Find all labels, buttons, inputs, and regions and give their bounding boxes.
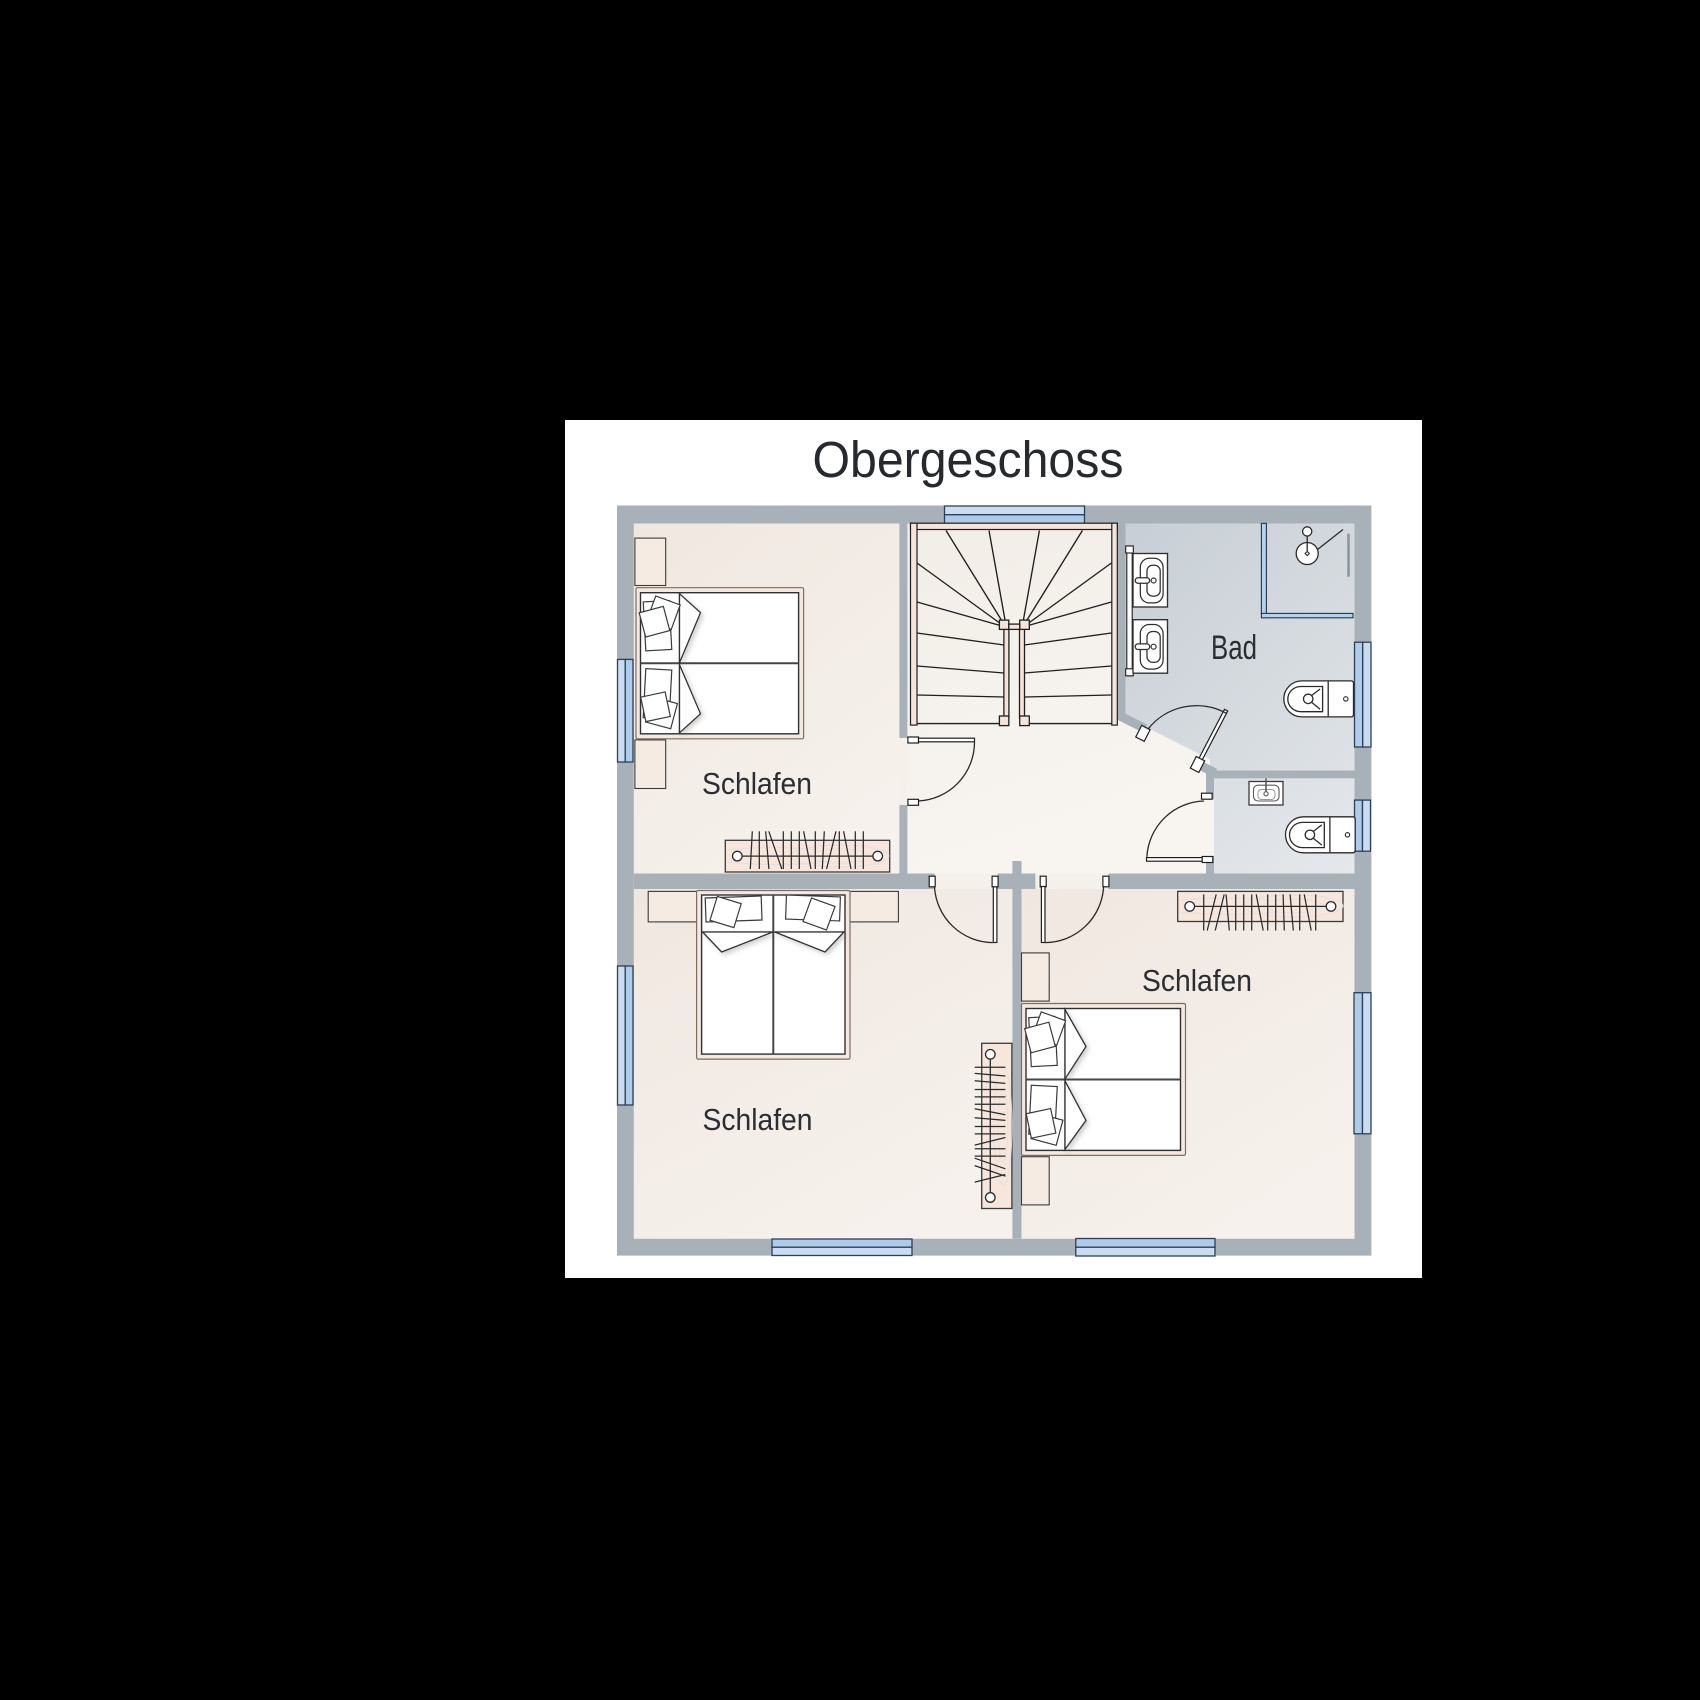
svg-text:Obergeschoss: Obergeschoss (813, 431, 1124, 488)
svg-text:Schlafen: Schlafen (1142, 963, 1252, 998)
svg-text:Bad: Bad (1211, 629, 1257, 667)
svg-text:Schlafen: Schlafen (703, 1102, 813, 1137)
svg-text:Schlafen: Schlafen (702, 766, 812, 801)
